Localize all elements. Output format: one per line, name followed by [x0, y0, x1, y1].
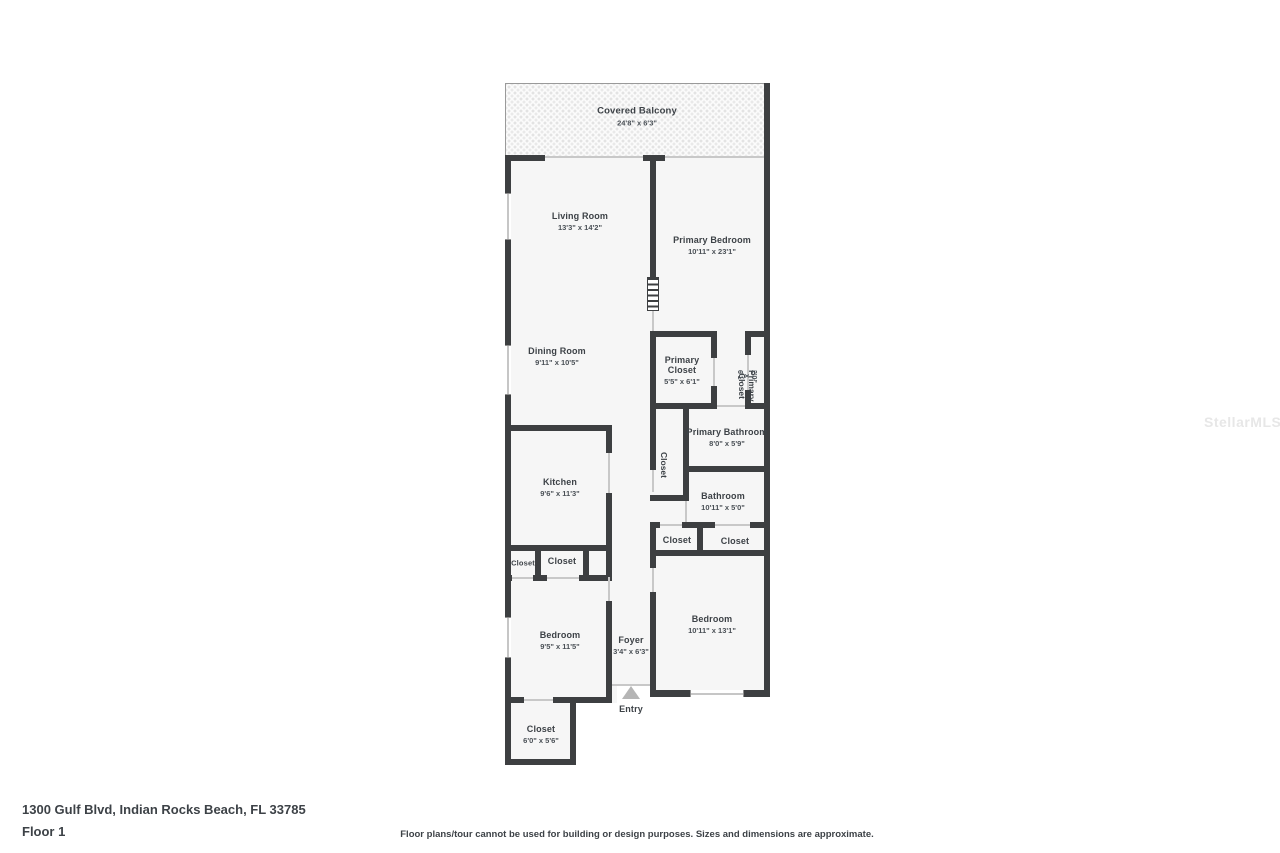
window: [690, 690, 744, 697]
door-opening: [652, 311, 654, 331]
entry-arrow-icon: [622, 686, 640, 699]
room-label-primary-bathroom: Primary Bathroom 8'0" x 5'9": [687, 427, 768, 448]
wall-segment: [505, 155, 511, 765]
door-opening: [608, 577, 610, 601]
wall-segment: [505, 759, 576, 765]
wall-segment: [606, 431, 612, 453]
wall-segment: [535, 551, 541, 575]
stellar-mls-watermark: StellarMLS: [1204, 414, 1280, 430]
room-label-bedroom-left: Bedroom 9'5" x 11'5": [540, 630, 581, 651]
door-opening: [713, 358, 715, 386]
wall-segment: [745, 403, 770, 409]
wall-segment: [650, 495, 689, 501]
wall-segment: [606, 601, 612, 703]
room-label-kitchen-closet-1: Closet: [511, 559, 535, 568]
property-address: 1300 Gulf Blvd, Indian Rocks Beach, FL 3…: [22, 802, 306, 817]
room-label-entry-closet: Closet 6'0" x 5'6": [523, 724, 559, 745]
wall-segment: [606, 493, 612, 577]
wall-segment: [650, 556, 656, 568]
wall-segment: [505, 155, 545, 161]
door-opening: [608, 453, 610, 493]
floor-plan-page: StellarMLS: [0, 0, 1280, 853]
wall-segment: [697, 528, 703, 550]
wall-segment: [553, 697, 612, 703]
wall-segment: [711, 337, 717, 358]
room-label-bathroom: Bathroom 10'11" x 5'0": [701, 491, 745, 512]
window: [505, 193, 511, 240]
wall-segment: [650, 331, 717, 337]
wall-segment: [505, 697, 524, 703]
room-label-primary-bedroom: Primary Bedroom 10'11" x 23'1": [673, 235, 751, 256]
door-opening: [512, 577, 533, 579]
room-label-kitchen: Kitchen 9'6" x 11'3": [540, 477, 579, 498]
room-label-bath-closet-1: Closet: [663, 535, 691, 545]
wall-segment: [764, 83, 770, 697]
wall-segment: [745, 337, 751, 355]
floor-plan: Covered Balcony 24'8" x 6'3" Living Room…: [505, 83, 770, 783]
room-label-kitchen-closet-2: Closet: [548, 556, 576, 566]
wall-segment: [650, 528, 656, 550]
door-opening: [660, 524, 682, 526]
room-label-bath-closet-2: Closet: [721, 536, 749, 546]
sliding-door-opening: [545, 156, 643, 158]
door-opening: [547, 577, 579, 579]
door-opening: [717, 405, 745, 407]
disclaimer-text: Floor plans/tour cannot be used for buil…: [400, 829, 874, 840]
room-label-living-room: Living Room 13'3" x 14'2": [552, 211, 608, 232]
wall-segment: [750, 522, 770, 528]
wall-segment: [683, 466, 770, 472]
wall-segment: [505, 575, 512, 581]
sliding-door-opening: [665, 156, 764, 158]
wall-segment: [583, 551, 589, 575]
wall-segment: [533, 575, 547, 581]
floor-number: Floor 1: [22, 824, 65, 839]
window: [505, 345, 511, 395]
door-opening: [685, 501, 687, 522]
room-label-covered-balcony: Covered Balcony 24'8" x 6'3": [597, 105, 677, 127]
bifold-door-icon: [647, 277, 659, 311]
room-label-dining-room: Dining Room 9'11" x 10'5": [528, 346, 586, 367]
wall-segment: [650, 409, 656, 470]
wall-segment: [505, 425, 612, 431]
room-label-foyer: Foyer 3'4" x 6'3": [613, 635, 649, 656]
room-label-bedroom-right: Bedroom 10'11" x 13'1": [688, 614, 736, 635]
wall-segment: [683, 409, 689, 501]
wall-segment: [650, 690, 690, 697]
entry-label: Entry: [619, 704, 643, 714]
wall-segment: [650, 155, 656, 277]
wall-segment: [650, 550, 770, 556]
window: [505, 617, 511, 658]
wall-segment: [650, 592, 656, 697]
door-opening: [715, 524, 750, 526]
wall-segment: [744, 690, 770, 697]
door-opening: [652, 470, 654, 492]
door-opening: [524, 699, 553, 701]
wall-segment: [505, 545, 612, 551]
wall-segment: [570, 703, 576, 765]
door-opening: [652, 568, 654, 592]
room-label-primary-closet: Primary Closet 5'5" x 6'1": [656, 355, 708, 386]
